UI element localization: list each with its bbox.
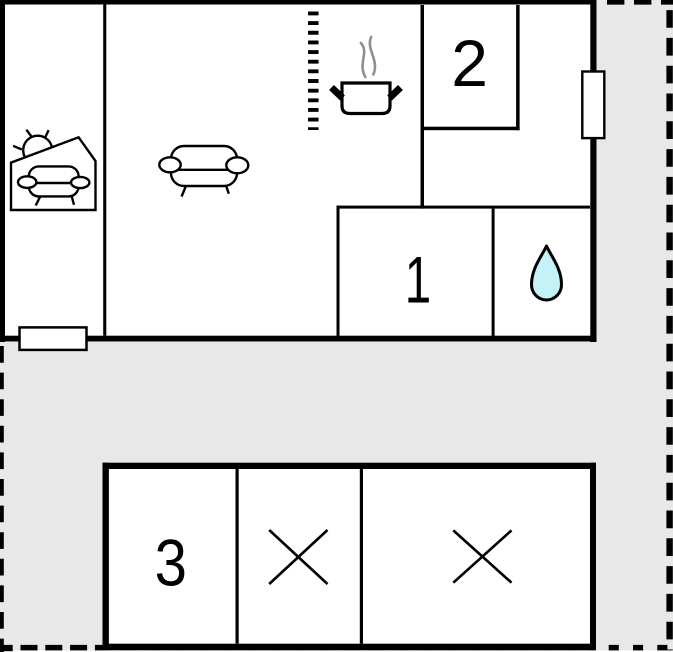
svg-text:2: 2 xyxy=(451,26,488,100)
svg-text:1: 1 xyxy=(405,244,431,317)
svg-text:3: 3 xyxy=(155,527,187,600)
